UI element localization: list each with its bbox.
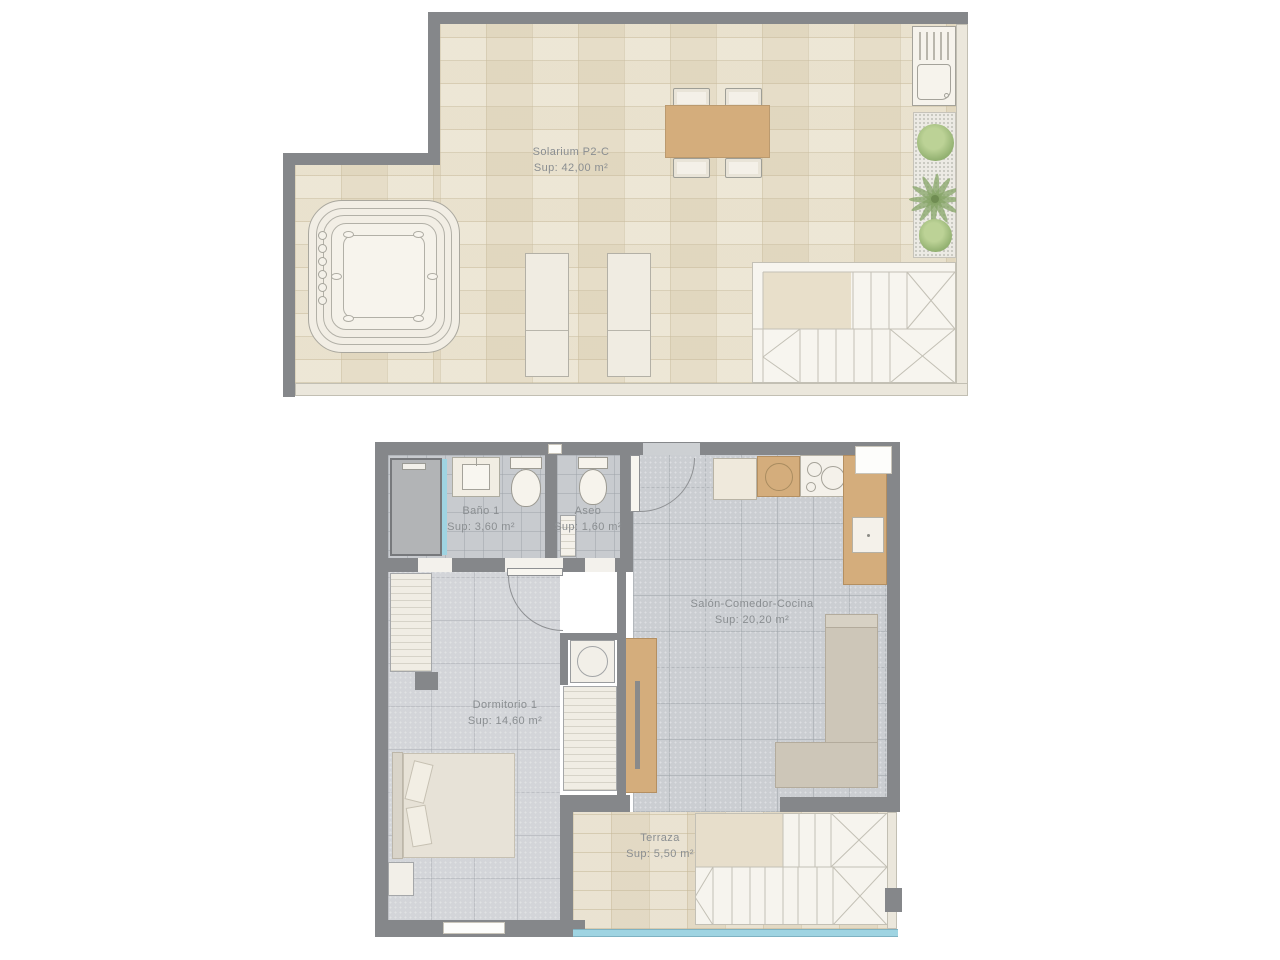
solarium-parapet-bottom (295, 383, 968, 396)
washer-drum-circle (577, 646, 608, 677)
solarium-parapet-right (956, 24, 968, 384)
bush-plant (919, 219, 952, 252)
kitchen-counter-sink (757, 456, 800, 497)
solarium-wall-top (428, 12, 968, 24)
bano-label: Baño 1 Sup: 3,60 m² (420, 503, 542, 535)
palm-trunk-dot (931, 195, 939, 203)
jacuzzi-jet (343, 231, 354, 238)
bedroom-door-leaf (507, 568, 563, 576)
washbasin-bowl (462, 464, 490, 490)
bano-title: Baño 1 (420, 503, 542, 519)
sofa-seat (775, 742, 878, 788)
dormitorio-label: Dormitorio 1 Sup: 14,60 m² (430, 697, 580, 729)
tv-wall (617, 570, 626, 812)
apartment-wall-top (375, 442, 900, 455)
sink-drainboard (919, 32, 949, 60)
bed-headboard (392, 752, 403, 859)
sun-lounger-fold-line (608, 330, 650, 331)
terraza-label: Terraza Sup: 5,50 m² (595, 830, 725, 862)
kitchen-window (855, 446, 892, 474)
terraza-area: Sup: 5,50 m² (595, 846, 725, 862)
apartment-wall-left (375, 442, 388, 937)
salon-title: Salón-Comedor-Cocina (652, 596, 852, 612)
cooktop-burner (807, 462, 822, 477)
salon-terraza-wall-right (780, 797, 893, 812)
toilet-bano-tank (510, 457, 542, 469)
dining-chair (673, 158, 710, 178)
entrance-opening (643, 443, 700, 455)
sun-lounger (607, 253, 651, 377)
dining-table (665, 105, 770, 158)
jacuzzi-jet (413, 231, 424, 238)
toilet-aseo-tank (578, 457, 608, 469)
cooktop-burner (806, 482, 816, 492)
washbasin (452, 457, 500, 497)
bed-pillow (404, 760, 433, 804)
nightstand (388, 862, 414, 896)
bush-plant (917, 124, 954, 161)
solarium-area: Sup: 42,00 m² (480, 160, 662, 176)
bano-area: Sup: 3,60 m² (420, 519, 542, 535)
solarium-label: Solarium P2-C Sup: 42,00 m² (480, 144, 662, 176)
dining-chair (725, 158, 762, 178)
jacuzzi-control-knob (318, 231, 327, 240)
washing-machine (570, 640, 615, 683)
terraza-glass-railing (573, 929, 898, 937)
planter-bed (913, 112, 956, 258)
kitchen-appliance (852, 517, 884, 553)
aseo-title: Aseo (546, 503, 630, 519)
cooktop (800, 455, 846, 497)
bano-top-window (548, 444, 562, 454)
jacuzzi-jet (427, 273, 438, 280)
toilet-aseo-bowl (579, 469, 607, 505)
entrance-door-leaf (630, 455, 640, 512)
cooktop-burner (821, 466, 845, 490)
jacuzzi-jet (413, 315, 424, 322)
tv-unit (623, 638, 657, 793)
solarium-wall-left-lower (283, 153, 295, 397)
shower-vent (402, 463, 426, 470)
washer-nook-wall-top (560, 633, 620, 640)
dormitorio-title: Dormitorio 1 (430, 697, 580, 713)
aseo-door-opening (585, 558, 615, 572)
aseo-area: Sup: 1,60 m² (546, 519, 630, 535)
bedroom-wall-jog (415, 672, 438, 690)
tv-screen (635, 681, 640, 769)
aseo-label: Aseo Sup: 1,60 m² (546, 503, 630, 535)
sink-drain-dot (944, 93, 949, 98)
jacuzzi (308, 200, 460, 353)
jacuzzi-jet (331, 273, 342, 280)
kitchen-sink-circle (765, 463, 793, 491)
jacuzzi-seat (343, 235, 425, 318)
solarium-staircase (752, 262, 956, 383)
jacuzzi-control-knob (318, 296, 327, 305)
bed-mattress (403, 753, 515, 858)
solarium-wall-notch (283, 153, 440, 165)
jacuzzi-control-knob (318, 244, 327, 253)
washer-nook-wall-left (560, 633, 568, 685)
bedroom-window (443, 922, 505, 934)
toilet-bano-bowl (511, 469, 541, 507)
fridge (713, 458, 757, 500)
terraza-left-wall (560, 795, 573, 929)
dormitorio-area: Sup: 14,60 m² (430, 713, 580, 729)
sun-lounger (525, 253, 569, 377)
jacuzzi-control-knob (318, 257, 327, 266)
terraza-right-wall-stub (885, 888, 902, 912)
jacuzzi-control-panel (318, 231, 327, 305)
solarium-title: Solarium P2-C (480, 144, 662, 160)
jacuzzi-jet (343, 315, 354, 322)
outdoor-sink-unit (912, 26, 956, 106)
salon-area: Sup: 20,20 m² (652, 612, 852, 628)
jacuzzi-control-knob (318, 283, 327, 292)
bedroom-wardrobe (390, 573, 432, 672)
bano-door-opening (418, 558, 452, 572)
apartment-wall-right (887, 442, 900, 812)
appliance-knob-dot (867, 534, 870, 537)
washbasin-tap-line (476, 458, 477, 466)
terraza-title: Terraza (595, 830, 725, 846)
sun-lounger-fold-line (526, 330, 568, 331)
jacuzzi-control-knob (318, 270, 327, 279)
bed-pillow (406, 805, 433, 848)
salon-label: Salón-Comedor-Cocina Sup: 20,20 m² (652, 596, 852, 628)
solarium-wall-left-upper (428, 12, 440, 165)
floor-plan-canvas: Solarium P2-C Sup: 42,00 m² (0, 0, 1280, 960)
